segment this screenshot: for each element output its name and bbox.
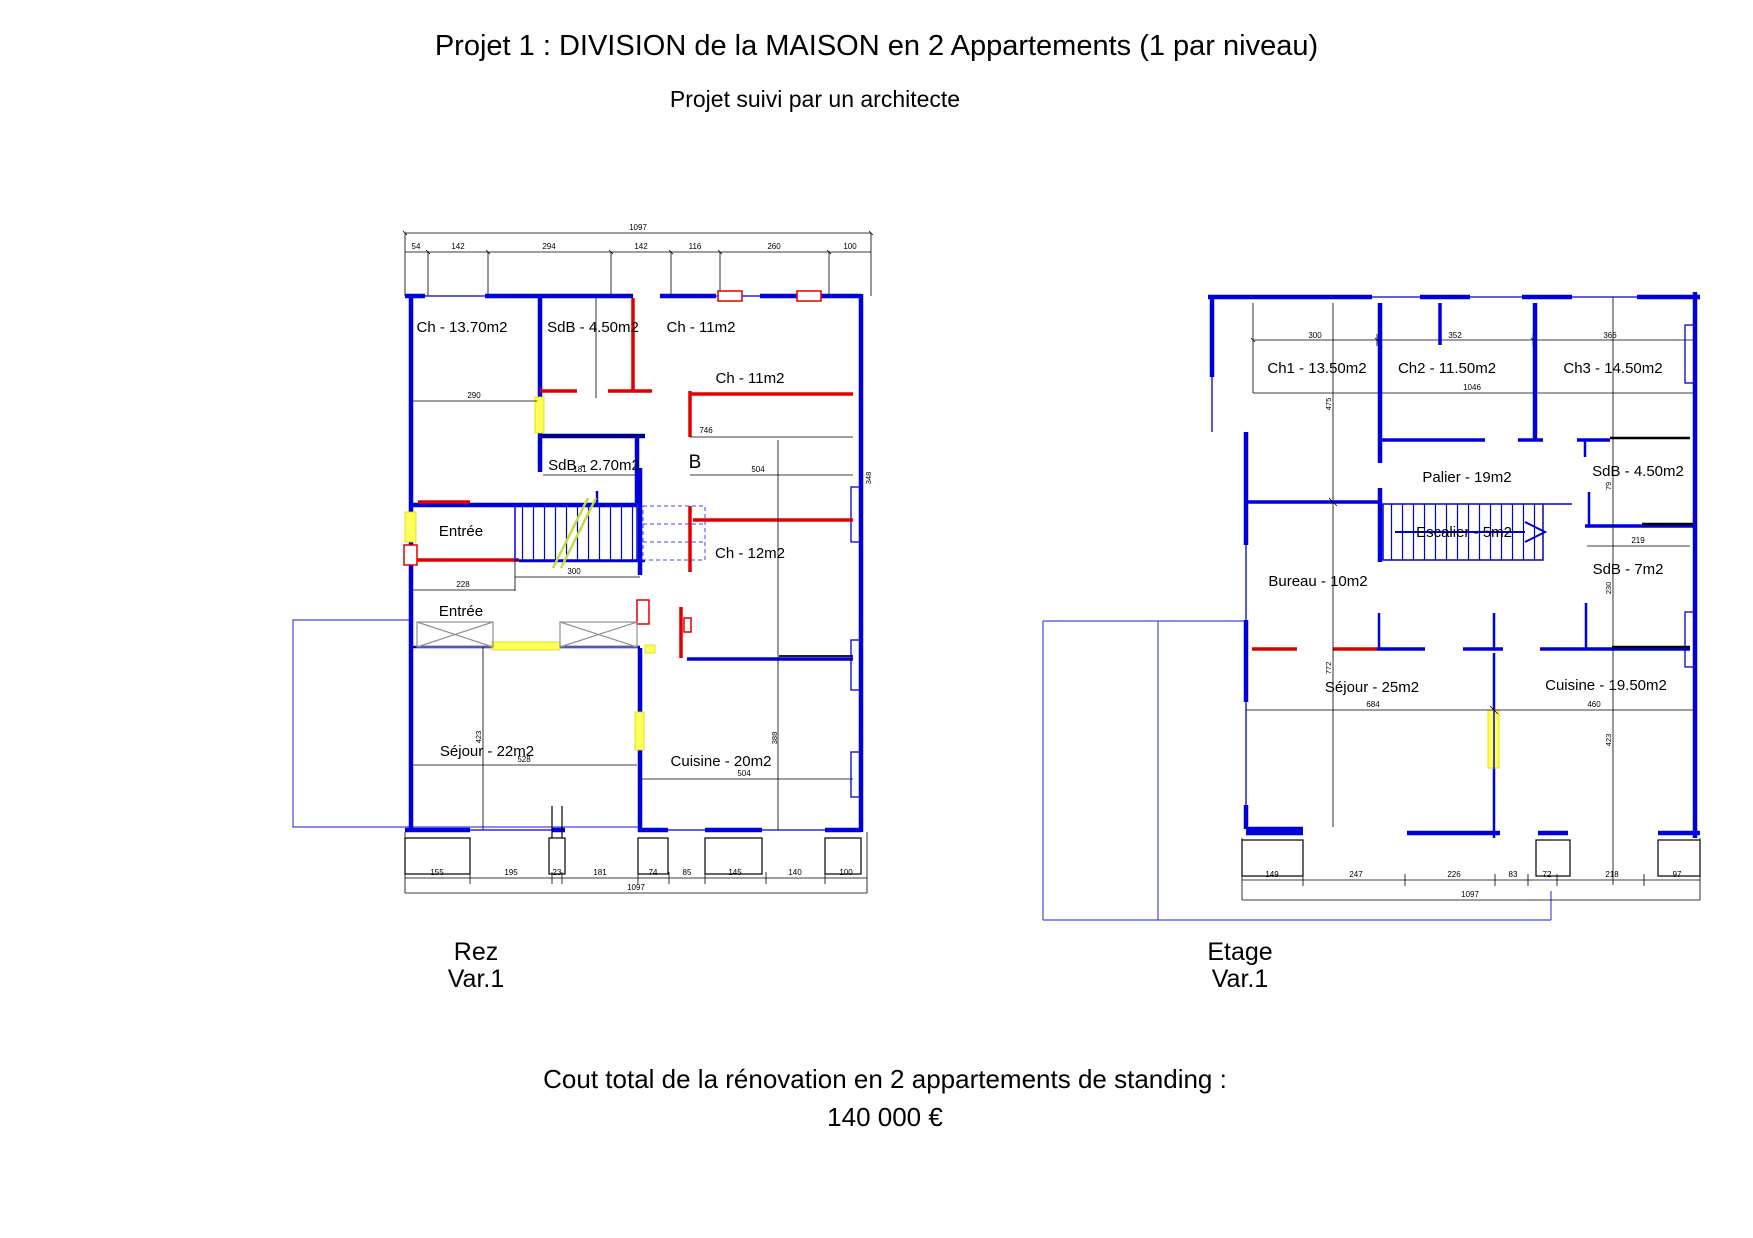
room-label-ch3: Ch3 - 14.50m2 — [1563, 360, 1662, 377]
rez-staircase — [515, 506, 637, 560]
dim-label: 247 — [1349, 870, 1363, 879]
dim-label: 1046 — [1463, 383, 1481, 392]
dim-label: 1097 — [1461, 890, 1479, 899]
rez-floor-plan: 1097 54 142 294 142 116 260 100 — [285, 195, 900, 910]
etage-caption: Etage Var.1 — [1140, 939, 1340, 993]
dim-label: 388 — [770, 732, 779, 745]
dim-label: 352 — [1448, 331, 1462, 340]
cost-summary: Cout total de la rénovation en 2 apparte… — [0, 1060, 1753, 1136]
rez-caption-line1: Rez — [376, 939, 576, 966]
dim-label: 181 — [593, 868, 607, 877]
dim-label: 142 — [451, 242, 465, 251]
rez-apartment-boundary-line — [293, 620, 641, 827]
dim-label: 226 — [1447, 870, 1461, 879]
room-label-escalier: Escalier - 5m2 — [1416, 524, 1512, 541]
dim-label: 475 — [1324, 398, 1333, 411]
rez-caption-line2: Var.1 — [376, 966, 576, 993]
dim-label: 1097 — [629, 223, 647, 232]
dim-label: 772 — [1324, 662, 1333, 675]
room-label-sejour: Séjour - 22m2 — [440, 743, 534, 760]
rez-caption: Rez Var.1 — [376, 939, 576, 993]
dim-label: 366 — [1603, 331, 1617, 340]
etage-top-dimension-lines — [1251, 303, 1697, 393]
room-label-palier: Palier - 19m2 — [1422, 469, 1511, 486]
floor-plan-document: Projet 1 : DIVISION de la MAISON en 2 Ap… — [0, 0, 1753, 1238]
cost-line1: Cout total de la rénovation en 2 apparte… — [0, 1060, 1753, 1098]
room-label-entree: Entrée — [439, 603, 483, 620]
dim-label: 149 — [1265, 870, 1279, 879]
dim-label: 97 — [1673, 870, 1682, 879]
rez-stair-dashed-extension — [643, 506, 705, 560]
rez-opening-markers — [405, 397, 655, 750]
room-label-ch: Ch - 12m2 — [715, 545, 785, 562]
dim-label: 504 — [751, 465, 765, 474]
dim-label: 142 — [634, 242, 648, 251]
dim-label: 155 — [430, 868, 444, 877]
dim-label: 423 — [1604, 734, 1613, 747]
etage-caption-line2: Var.1 — [1140, 966, 1340, 993]
dim-label: 219 — [1631, 536, 1645, 545]
dim-label: 218 — [1605, 870, 1619, 879]
dim-label: 85 — [683, 868, 692, 877]
rez-top-dimension-lines — [403, 231, 873, 296]
room-label-ch: Ch - 11m2 — [716, 370, 785, 387]
room-label-sejour: Séjour - 25m2 — [1325, 679, 1419, 696]
cost-line2: 140 000 € — [0, 1098, 1753, 1136]
dim-label: 195 — [504, 868, 518, 877]
dim-label: 684 — [1366, 700, 1380, 709]
room-label-sdb: SdB - 4.50m2 — [547, 319, 639, 336]
room-label-ch2: Ch2 - 11.50m2 — [1398, 360, 1496, 377]
room-label-ch: Ch - 13.70m2 — [417, 319, 508, 336]
room-label-sdb: SdB - 2.70m2 — [548, 457, 640, 474]
dim-label: 1097 — [627, 883, 645, 892]
section-label: B — [689, 452, 702, 473]
dim-label: 100 — [843, 242, 857, 251]
room-label-bureau: Bureau - 10m2 — [1268, 573, 1367, 590]
dim-label: 54 — [412, 242, 421, 251]
room-label-entree: Entrée — [439, 523, 483, 540]
dim-label: 74 — [649, 868, 658, 877]
room-label-ch: Ch - 11m2 — [667, 319, 736, 336]
dim-label: 116 — [689, 242, 702, 251]
dim-label: 83 — [1509, 870, 1518, 879]
room-label-cuisine: Cuisine - 19.50m2 — [1545, 677, 1667, 694]
dim-label: 23 — [553, 868, 562, 877]
rez-pillars — [405, 806, 861, 874]
dim-label: 79 — [1604, 482, 1613, 490]
dim-label: 300 — [567, 567, 581, 576]
dim-label: 348 — [864, 472, 873, 485]
dim-label: 290 — [467, 391, 481, 400]
dim-label: 100 — [839, 868, 853, 877]
dim-label: 72 — [1543, 870, 1552, 879]
dim-label: 228 — [456, 580, 470, 589]
dim-label: 260 — [767, 242, 781, 251]
room-label-cuisine: Cuisine - 20m2 — [671, 753, 772, 770]
dim-label: 145 — [728, 868, 742, 877]
dim-label: 300 — [1308, 331, 1322, 340]
etage-caption-line1: Etage — [1140, 939, 1340, 966]
dim-label: 230 — [1604, 582, 1613, 595]
dim-label: 460 — [1587, 700, 1601, 709]
page-subtitle: Projet suivi par un architecte — [0, 86, 1630, 113]
dim-label: 140 — [788, 868, 802, 877]
room-label-ch1: Ch1 - 13.50m2 — [1267, 360, 1366, 377]
etage-pillars — [1242, 840, 1700, 876]
room-label-sdb2: SdB - 7m2 — [1593, 561, 1664, 578]
etage-apartment-boundary-line — [1043, 621, 1551, 920]
dim-label: 423 — [474, 731, 483, 744]
etage-floor-plan: 300 352 366 1046 — [1020, 230, 1753, 930]
dim-label: 294 — [542, 242, 556, 251]
dim-label: 746 — [699, 426, 713, 435]
room-label-sdb1: SdB - 4.50m2 — [1592, 463, 1684, 480]
dim-label: 504 — [737, 769, 751, 778]
page-title: Projet 1 : DIVISION de la MAISON en 2 Ap… — [0, 30, 1753, 63]
